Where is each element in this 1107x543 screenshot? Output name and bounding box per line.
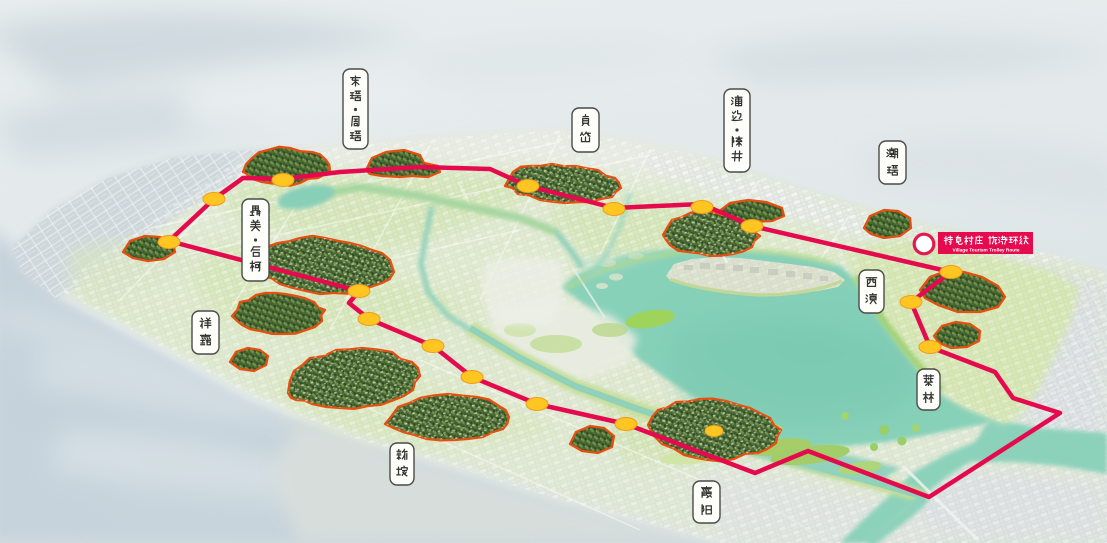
- svg-text:Village Tourism Trolley Route: Village Tourism Trolley Route: [953, 248, 1020, 254]
